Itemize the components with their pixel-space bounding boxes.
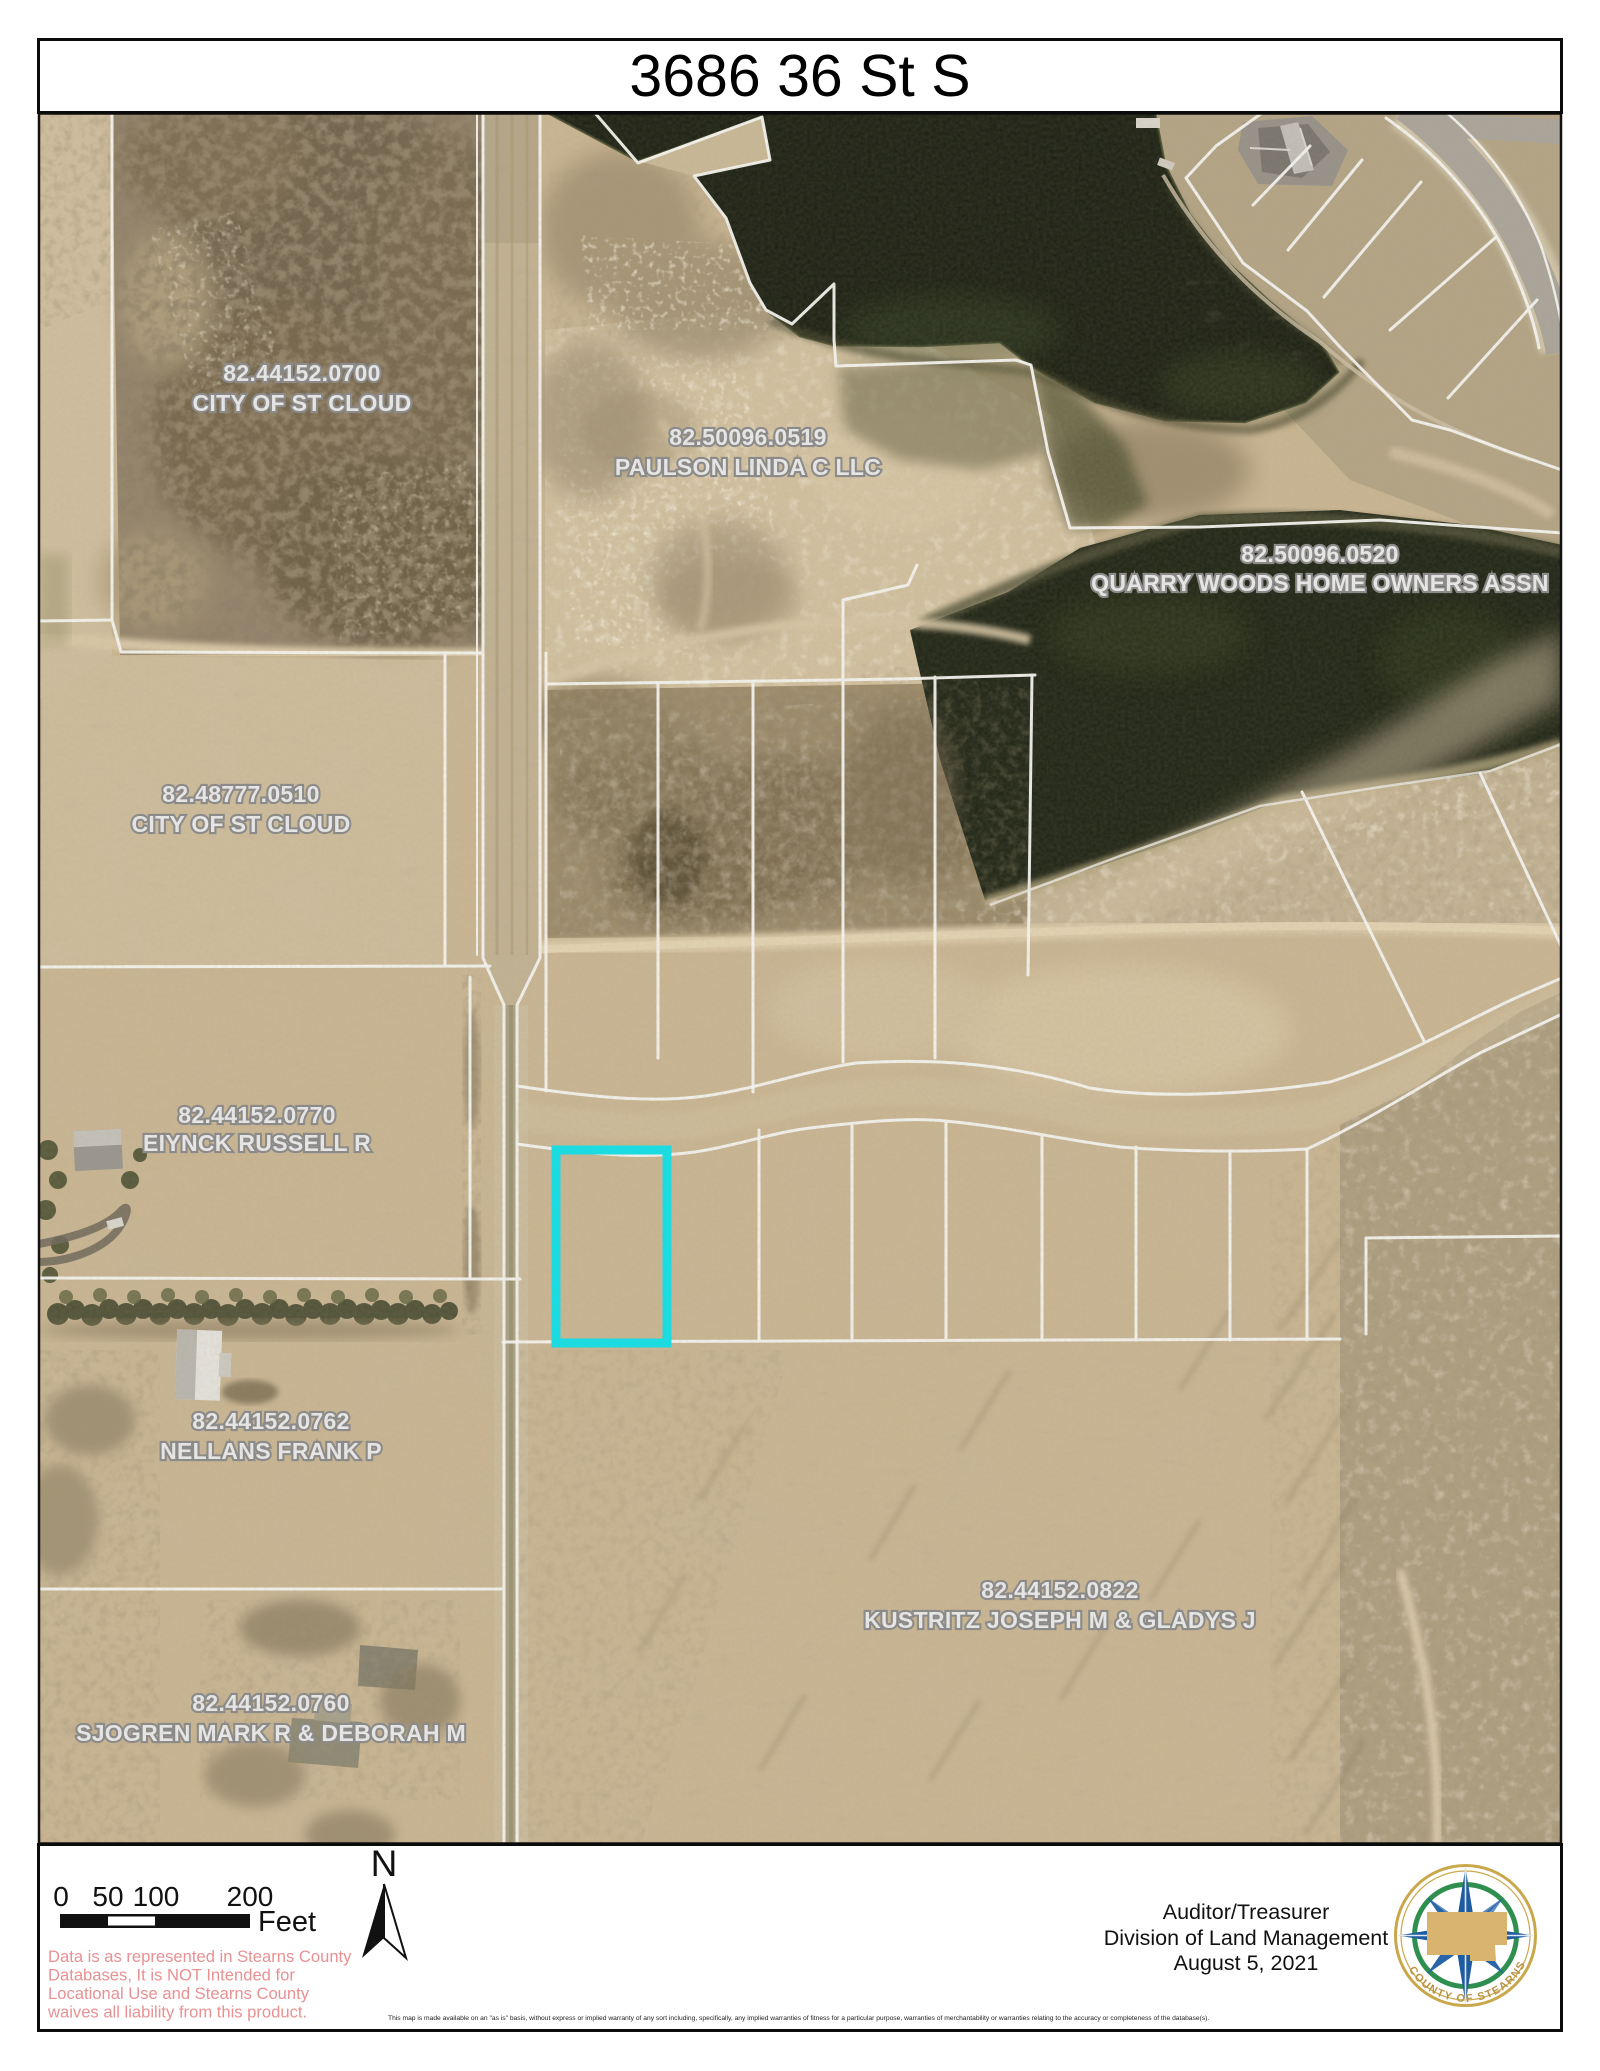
svg-text:Locational Use and Stearns Cou: Locational Use and Stearns County — [48, 1984, 310, 2003]
svg-text:Databases, It is NOT Intended: Databases, It is NOT Intended for — [48, 1966, 295, 1985]
svg-text:waives all liability from this: waives all liability from this product. — [47, 2003, 307, 2022]
svg-text:Auditor/Treasurer: Auditor/Treasurer — [1163, 1900, 1330, 1924]
svg-text:0: 0 — [53, 1881, 69, 1912]
svg-text:100: 100 — [133, 1881, 180, 1912]
svg-text:50: 50 — [92, 1881, 123, 1912]
svg-text:August 5, 2021: August 5, 2021 — [1174, 1951, 1319, 1975]
svg-text:3686 36 St S: 3686 36 St S — [629, 43, 970, 109]
svg-text:Data is as represented in Stea: Data is as represented in Stearns County — [48, 1947, 352, 1966]
svg-text:Division of Land Management: Division of Land Management — [1104, 1926, 1388, 1950]
svg-text:N: N — [371, 1843, 398, 1884]
svg-text:Feet: Feet — [258, 1906, 316, 1938]
svg-text:This map is made available on: This map is made available on an "as is"… — [388, 2015, 1209, 2022]
